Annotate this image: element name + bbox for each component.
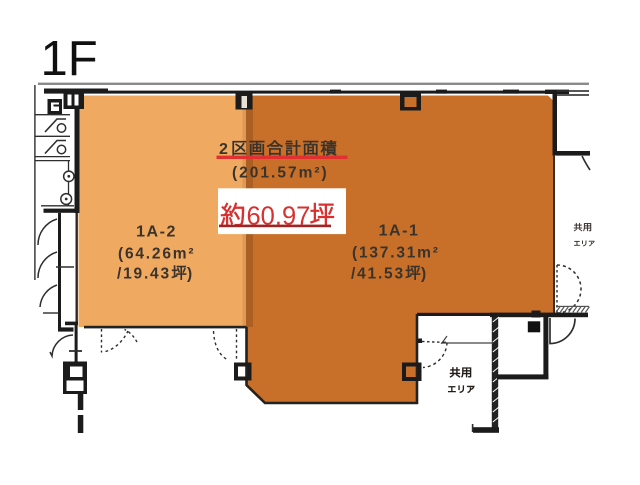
svg-text:1A-2: 1A-2 [136, 224, 177, 241]
svg-text:2: 2 [219, 141, 228, 158]
svg-text:(64.26m²: (64.26m² [118, 246, 195, 263]
svg-text:1F: 1F [41, 32, 98, 86]
svg-text:(137.31m²: (137.31m² [352, 245, 440, 262]
svg-text:(201.57m²): (201.57m²) [232, 165, 329, 182]
svg-text:/19.43: /19.43 [117, 266, 171, 283]
svg-text:): ) [187, 266, 192, 283]
svg-text:): ) [421, 266, 426, 283]
svg-text:1A-1: 1A-1 [379, 223, 420, 240]
svg-text:/41.53: /41.53 [351, 266, 405, 283]
